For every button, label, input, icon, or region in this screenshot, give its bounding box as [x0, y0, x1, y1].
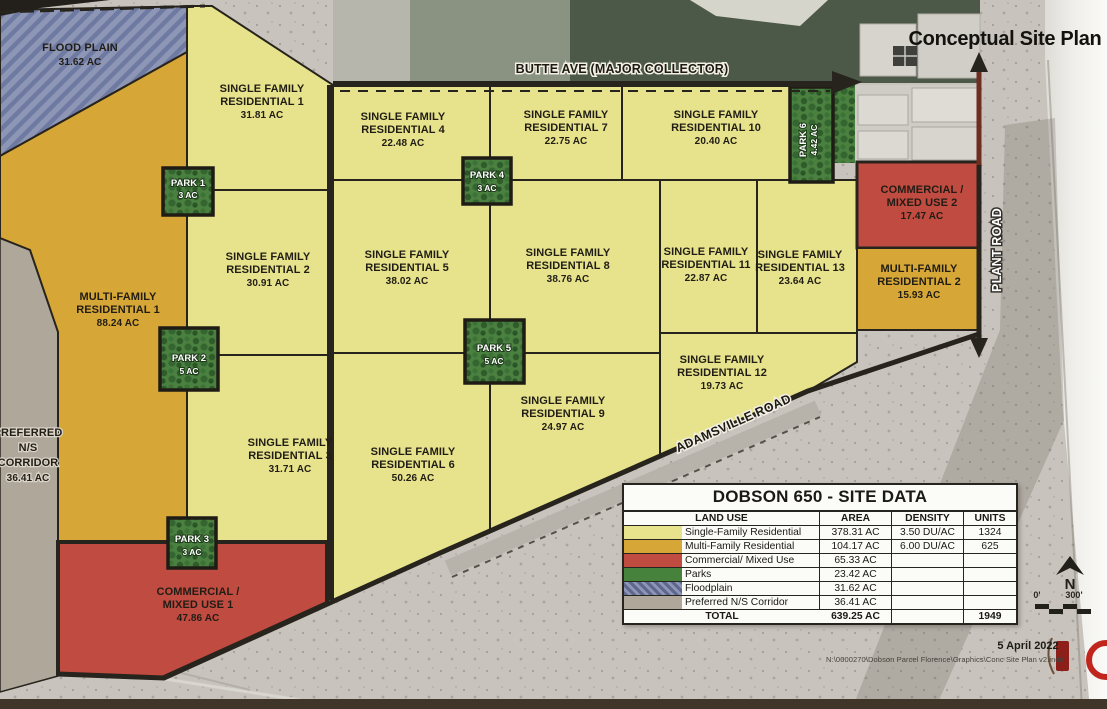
parcel-name: SINGLE FAMILY [664, 246, 749, 258]
parcel-name: SINGLE FAMILY [526, 247, 611, 259]
parcel-area: 24.97 AC [542, 422, 585, 433]
building-block [912, 127, 980, 160]
park-name: PARK 4 [470, 170, 505, 181]
parcel-name: RESIDENTIAL 12 [677, 367, 767, 379]
col-header-land-use: LAND USE [624, 512, 820, 526]
parcel-name: RESIDENTIAL 3 [248, 450, 332, 462]
parcel-area: 38.76 AC [547, 274, 590, 285]
park-name: PARK 2 [172, 353, 206, 364]
cell-area: 65.33 AC [820, 554, 892, 568]
parcel-area: 20.40 AC [695, 136, 738, 147]
cell-area: 104.17 AC [820, 540, 892, 554]
park-area: 3 AC [182, 547, 201, 557]
photo-bottom-edge [0, 699, 1107, 709]
park-area: 5 AC [179, 366, 198, 376]
parcel-area: 15.93 AC [898, 290, 941, 301]
parcel-area: 36.41 AC [7, 473, 50, 484]
parcel-area: 31.71 AC [269, 464, 312, 475]
cell-density [892, 596, 964, 610]
parcel-name: SINGLE FAMILY [680, 354, 765, 366]
parcel-area: 47.86 AC [177, 613, 220, 624]
parcel-name: RESIDENTIAL 11 [661, 259, 750, 271]
parcel-area: 88.24 AC [97, 318, 140, 329]
swatch-parks [624, 568, 682, 582]
swatch-corridor [624, 596, 682, 610]
parcel-name: SINGLE FAMILY [521, 395, 606, 407]
vegetation-strip [833, 85, 855, 163]
parcel-name: N/S [19, 442, 38, 454]
cell-units: 1324 [964, 526, 1016, 540]
swatch-commercial [624, 554, 682, 568]
cell-density [892, 568, 964, 582]
cell-land-use: Multi-Family Residential [682, 540, 820, 554]
park-area: 5 AC [484, 356, 503, 366]
parcel-name: COMMERCIAL / [157, 586, 240, 598]
cell-density: 3.50 DU/AC [892, 526, 964, 540]
parcel-name: RESIDENTIAL 1 [220, 96, 304, 108]
col-header-units: UNITS [964, 512, 1016, 526]
parcel-name: RESIDENTIAL 2 [226, 264, 310, 276]
park-name: PARK 3 [175, 534, 209, 545]
parcel-mf2 [857, 248, 980, 330]
parcel-name: MIXED USE 1 [163, 599, 234, 611]
parcel-name: SINGLE FAMILY [758, 249, 843, 261]
cell-area: 36.41 AC [820, 596, 892, 610]
butte-ave-label: BUTTE AVE (MAJOR COLLECTOR) [516, 62, 729, 76]
parcel-name: CORRIDOR [0, 457, 58, 469]
cell-density [892, 554, 964, 568]
file-path: N:\0000270\Dobson Parcel Florence\Graphi… [810, 655, 1080, 664]
total-area: 639.25 AC [820, 610, 892, 623]
parcel-name: FLOOD PLAIN [42, 42, 118, 54]
parcel-name: MULTI-FAMILY [80, 291, 158, 303]
parcel-name: RESIDENTIAL 8 [526, 260, 610, 272]
parcel-name: SINGLE FAMILY [248, 437, 333, 449]
parcel-area: 17.47 AC [901, 211, 944, 222]
parcel-name: RESIDENTIAL 2 [877, 276, 961, 288]
park-name: PARK 6 [798, 123, 809, 157]
parcel-area: 38.02 AC [386, 276, 429, 287]
parcel-name: SINGLE FAMILY [524, 109, 609, 121]
parcel-area: 30.91 AC [247, 278, 290, 289]
parcel-name: RESIDENTIAL 1 [76, 304, 160, 316]
parcel-name: RESIDENTIAL 13 [755, 262, 845, 274]
swatch-single-family [624, 526, 682, 540]
cell-units [964, 568, 1016, 582]
parcel-name: RESIDENTIAL 5 [365, 262, 449, 274]
site-data-table: DOBSON 650 - SITE DATA LAND USE AREA DEN… [622, 483, 1018, 625]
page-title: Conceptual Site Plan [903, 28, 1107, 51]
park-area: 4.42 AC [809, 125, 819, 156]
building-block [858, 95, 908, 125]
parcel-name: SINGLE FAMILY [361, 111, 446, 123]
parcel-name: SINGLE FAMILY [674, 109, 759, 121]
cell-land-use: Commercial/ Mixed Use [682, 554, 820, 568]
parcel-area: 50.26 AC [392, 473, 435, 484]
parcel-name: RESIDENTIAL 6 [371, 459, 455, 471]
scale-end-label: 300' [1065, 590, 1082, 600]
parcel-name: RESIDENTIAL 4 [361, 124, 445, 136]
cell-units [964, 582, 1016, 596]
scale-segment [1077, 609, 1091, 614]
cell-area: 23.42 AC [820, 568, 892, 582]
park-area: 3 AC [477, 183, 496, 193]
parcel-name: SINGLE FAMILY [220, 83, 305, 95]
conceptual-site-plan-page: FLOOD PLAIN 31.62 AC PREFERRED N/S CORRI… [0, 0, 1107, 709]
cell-density: 6.00 DU/AC [892, 540, 964, 554]
total-label: TOTAL [624, 610, 820, 623]
park-name: PARK 5 [477, 343, 512, 354]
cell-units: 625 [964, 540, 1016, 554]
swatch-floodplain [624, 582, 682, 596]
parcel-name: SINGLE FAMILY [371, 446, 456, 458]
scale-segment [1049, 609, 1063, 614]
parcel-name: PREFERRED [0, 427, 62, 439]
swatch-multi-family [624, 540, 682, 554]
building-block [912, 88, 980, 122]
table-title: DOBSON 650 - SITE DATA [624, 485, 1016, 512]
scale-segment [1035, 604, 1049, 609]
parcel-area: 19.73 AC [701, 381, 744, 392]
cell-area: 31.62 AC [820, 582, 892, 596]
col-header-density: DENSITY [892, 512, 964, 526]
scale-start-label: 0' [1033, 590, 1040, 600]
cell-density [892, 582, 964, 596]
total-density-empty [892, 610, 964, 623]
total-units: 1949 [964, 610, 1016, 623]
parcel-area: 22.48 AC [382, 138, 425, 149]
cell-units [964, 554, 1016, 568]
cell-area: 378.31 AC [820, 526, 892, 540]
park-area: 3 AC [178, 190, 197, 200]
parcel-area: 31.81 AC [241, 110, 284, 121]
parcel-name: COMMERCIAL / [881, 184, 964, 196]
building-block [858, 131, 908, 159]
parcel-name: SINGLE FAMILY [226, 251, 311, 263]
parcel-name: MIXED USE 2 [887, 197, 958, 209]
plan-date: 5 April 2022 [988, 640, 1068, 652]
parcel-area: 22.87 AC [685, 273, 728, 284]
scale-segment [1063, 604, 1077, 609]
parcel-area: 23.64 AC [779, 276, 822, 287]
cell-units [964, 596, 1016, 610]
parcel-area: 31.62 AC [59, 57, 102, 68]
cell-land-use: Parks [682, 568, 820, 582]
parcel-name: MULTI-FAMILY [881, 263, 959, 275]
cell-land-use: Preferred N/S Corridor [682, 596, 820, 610]
col-header-area: AREA [820, 512, 892, 526]
parcel-name: RESIDENTIAL 9 [521, 408, 605, 420]
park-4 [463, 158, 511, 204]
cell-land-use: Single-Family Residential [682, 526, 820, 540]
parcel-area: 22.75 AC [545, 136, 588, 147]
label-park6: PARK 6 4.42 AC [798, 123, 819, 157]
parcel-name: SINGLE FAMILY [365, 249, 450, 261]
parcel-name: RESIDENTIAL 7 [524, 122, 608, 134]
table-grid: LAND USE AREA DENSITY UNITS Single-Famil… [624, 512, 1016, 623]
parcel-name: RESIDENTIAL 10 [671, 122, 761, 134]
park-name: PARK 1 [171, 178, 206, 189]
cell-land-use: Floodplain [682, 582, 820, 596]
aerial-patch [333, 0, 413, 83]
